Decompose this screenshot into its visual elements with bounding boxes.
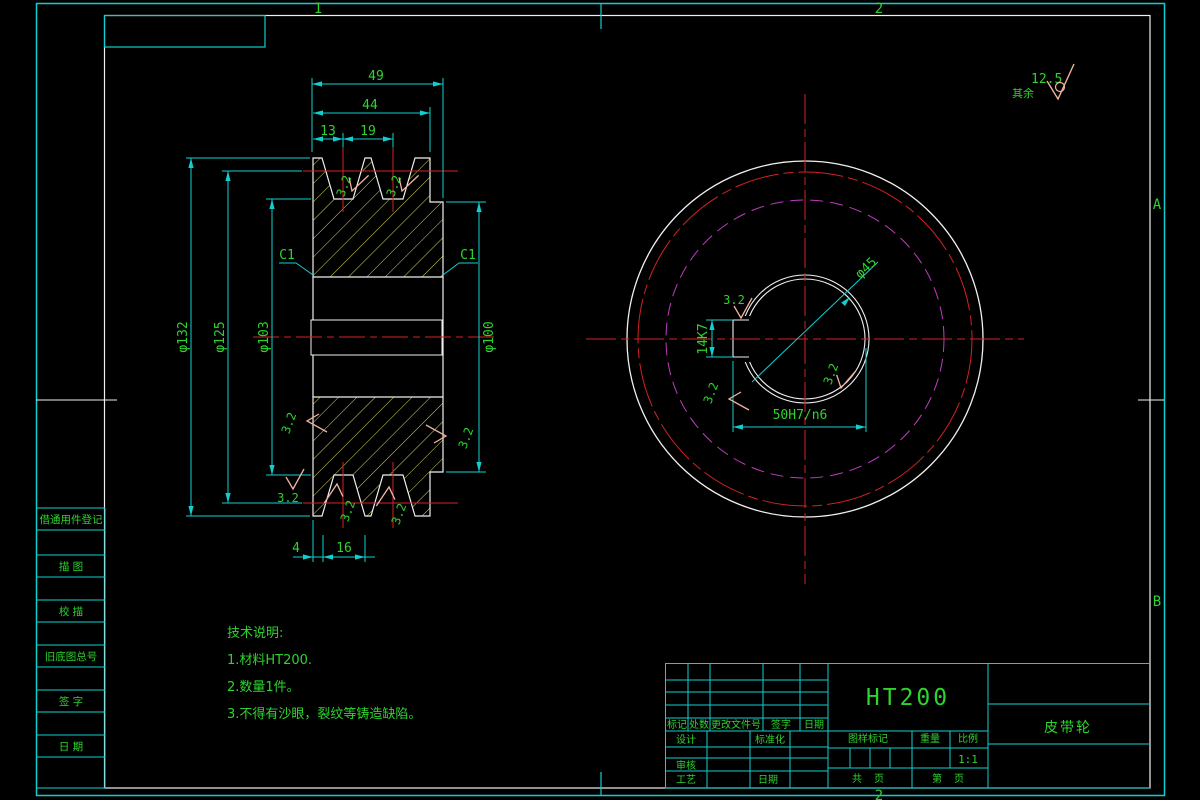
dim-bottom-16: 16 [336, 541, 352, 556]
dim-bottom-4: 4 [292, 541, 300, 556]
notes-line-1: 1.材料HT200. [227, 653, 312, 668]
rev-col-count: 处数 [689, 718, 709, 731]
right-view-front: φ45 14K7 50H7/n6 3.2 3.2 3.2 [586, 94, 1024, 584]
sig-date: 日期 [758, 774, 778, 786]
chamfer-leader-right [443, 263, 478, 275]
scale-value: 1:1 [958, 753, 978, 766]
dim-dia-100: φ100 [482, 321, 497, 352]
sidebar-item-old-base-no: 旧底图总号 [45, 650, 98, 663]
zone-label-top-1: 1 [314, 1, 322, 17]
zone-label-right-b: B [1153, 594, 1161, 610]
drawing-canvas: 1 2 A B 2 其余 12.5 [0, 0, 1200, 800]
sheet-page-label: 页 [954, 773, 964, 785]
dim-dia-132: φ132 [176, 321, 191, 352]
top-left-box [105, 16, 266, 48]
info-drawing-mark: 图样标记 [848, 732, 888, 745]
roughness-keyway-bottom: 3.2 [701, 380, 722, 405]
dim-bore-50h7n6: 50H7/n6 [773, 408, 828, 423]
roughness-keyway-top: 3.2 [723, 293, 745, 307]
roughness-groove2-bottom: 3.2 [389, 501, 410, 526]
zone-label-right-a: A [1153, 197, 1162, 213]
chamfer-label-left: C1 [279, 248, 295, 263]
left-view-dim-texts: 49 44 13 19 φ132 φ125 φ103 φ100 C1 C1 4 … [176, 69, 497, 556]
zone-label-bottom-2: 2 [875, 788, 883, 800]
sig-standard: 标准化 [755, 733, 785, 746]
part-name: 皮带轮 [1044, 720, 1092, 736]
dim-width-44: 44 [362, 98, 378, 113]
sig-audit: 审核 [676, 759, 696, 772]
sidebar-item-check-trace: 校 描 [59, 605, 83, 618]
roughness-prefix: 其余 [1012, 86, 1034, 100]
pulley-section-lower [313, 397, 443, 516]
dim-width-19: 19 [360, 124, 376, 139]
dim-keyway-14k7: 14K7 [696, 323, 711, 354]
roughness-groove1-bottom: 3.2 [338, 498, 359, 523]
technical-notes: 技术说明: 1.材料HT200. 2.数量1件。 3.不得有沙眼，裂纹等铸造缺陷… [227, 626, 421, 722]
roughness-value: 12.5 [1031, 72, 1062, 87]
roughness-right-mid: 3.2 [456, 425, 477, 450]
dim-dia-103: φ103 [257, 321, 272, 352]
general-roughness-note: 其余 12.5 [1012, 64, 1074, 100]
zone-label-top-2: 2 [875, 1, 883, 17]
rev-col-date: 日期 [804, 719, 824, 731]
notes-line-2: 2.数量1件。 [227, 680, 300, 695]
roughness-bore-inner: 3.2 [821, 361, 842, 386]
material-label: HT200 [866, 685, 950, 711]
sidebar-item-borrow-register: 借通用件登记 [40, 513, 103, 526]
sheet-label: 第 [932, 772, 942, 785]
dim-width-13: 13 [320, 124, 336, 139]
left-view-section: 49 44 13 19 φ132 φ125 φ103 φ100 C1 C1 4 … [176, 69, 497, 562]
rev-col-mark: 标记 [667, 719, 687, 731]
sidebar-item-trace: 描 图 [59, 560, 83, 573]
cad-drawing-page: 1 2 A B 2 其余 12.5 [0, 0, 1200, 800]
sidebar-table: 借通用件登记 描 图 校 描 旧底图总号 签 字 日 期 [37, 508, 106, 788]
title-block: 标记 处数 更改文件号 签字 日期 设计 标准化 审核 工艺 日期 图样标记 重… [666, 664, 1151, 789]
rev-col-sign: 签字 [771, 718, 791, 731]
notes-heading: 技术说明: [227, 626, 283, 641]
sidebar-item-signature: 签 字 [59, 695, 83, 708]
sidebar-item-date: 日 期 [59, 741, 83, 753]
sig-process: 工艺 [676, 774, 696, 786]
pages-total-label: 共 [852, 773, 862, 785]
rev-col-file: 更改文件号 [711, 718, 761, 731]
chamfer-leader-left [279, 263, 313, 275]
dim-dia-45: φ45 [853, 255, 880, 282]
dim-width-49: 49 [368, 69, 384, 84]
info-scale: 比例 [958, 732, 978, 745]
roughness-left-mid: 3.2 [279, 410, 300, 435]
info-weight: 重量 [920, 732, 940, 745]
chamfer-label-right: C1 [460, 248, 476, 263]
pulley-section-upper [313, 158, 443, 277]
roughness-bottom-left: 3.2 [277, 491, 299, 505]
notes-line-3: 3.不得有沙眼，裂纹等铸造缺陷。 [227, 706, 421, 722]
sig-design: 设计 [676, 733, 696, 746]
dim-dia-125: φ125 [213, 321, 228, 352]
frame-border: 1 2 A B 2 [36, 1, 1165, 800]
pages-page-label: 页 [874, 773, 884, 785]
